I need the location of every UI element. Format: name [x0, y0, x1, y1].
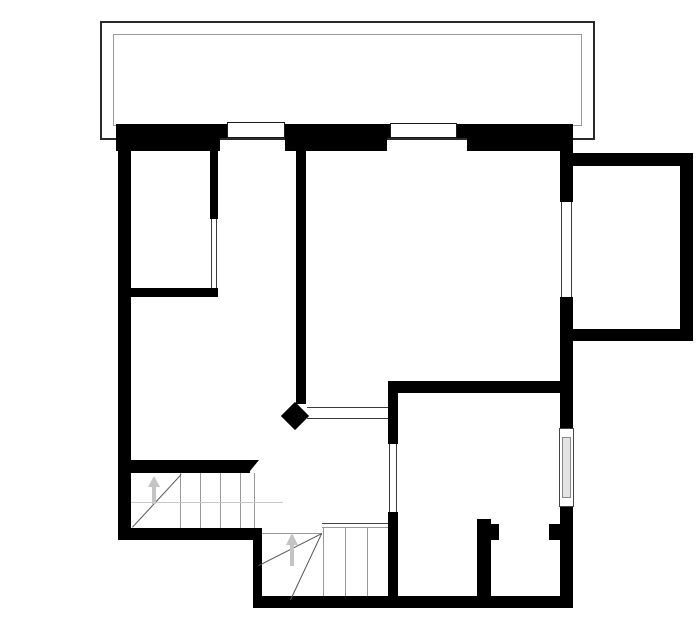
upper-stair-tread	[220, 473, 221, 528]
bedroom-door-opening-line-2	[216, 219, 217, 288]
extension-bottom-wall	[573, 329, 693, 341]
top-wall-mid-outer	[285, 124, 390, 138]
room-door-opening-line-2	[396, 444, 397, 512]
wall-end-cap	[281, 402, 309, 430]
lower-stair-edge-gray	[322, 527, 388, 528]
upper-stair-direction-arrow-head	[148, 476, 160, 487]
left-exterior-wall	[118, 124, 131, 540]
stair-top-wall	[128, 460, 250, 473]
lower-stair-tread	[367, 527, 368, 596]
lower-stair-direction-arrow-head	[286, 533, 298, 545]
closet-wall-vertical	[477, 519, 491, 596]
room-divider-wall-upper	[388, 381, 398, 444]
bottom-wall-left	[118, 528, 255, 540]
stair-wall-bevel	[250, 460, 259, 471]
room-divider-wall-lower	[388, 512, 398, 601]
top-wall-left-inner	[116, 138, 220, 151]
extension-right-wall	[680, 153, 693, 341]
bedroom-bottom-wall	[131, 288, 218, 297]
top-wall-right-inner	[467, 138, 573, 151]
upper-stair-tread	[240, 473, 241, 528]
balcony-door-opening-line-2	[571, 202, 572, 297]
bedroom-side-wall	[210, 138, 218, 219]
extension-top-wall	[573, 153, 693, 166]
closet-door-jamb	[549, 524, 560, 540]
lower-stair-edge-dark	[322, 523, 388, 524]
right-exterior-wall-upper	[560, 124, 573, 202]
window-top-1	[227, 122, 285, 138]
lower-stair-tread	[323, 527, 324, 596]
window-top-2	[390, 123, 457, 138]
floor-plan	[0, 0, 700, 644]
closet-wall-stub	[491, 524, 499, 540]
right-exterior-wall-middle	[560, 297, 573, 428]
top-wall-left-outer	[116, 124, 227, 138]
room-door-opening-line-1	[389, 444, 390, 512]
top-wall-right-outer	[457, 124, 573, 138]
balcony-door-opening-line-1	[561, 202, 562, 297]
bedroom-door-opening-line-1	[211, 219, 212, 288]
lower-stair-direction-arrow-shaft	[290, 545, 294, 566]
lower-stair-tread	[345, 527, 346, 596]
right-exterior-wall-lower	[560, 507, 573, 608]
hall-passage-opening-line-1	[307, 407, 388, 408]
upper-stair-tread	[200, 473, 201, 528]
hall-passage-opening-line-2	[307, 418, 388, 419]
window-right-glazing	[562, 437, 571, 498]
upper-stair-direction-arrow-shaft	[152, 487, 156, 504]
center-hall-wall	[296, 138, 306, 404]
upper-stair-tread	[254, 473, 255, 528]
upper-stair-tread	[180, 473, 181, 528]
bottom-exterior-wall	[253, 596, 573, 608]
terrace-inner-outline	[113, 34, 582, 126]
living-bottom-wall	[388, 381, 560, 393]
